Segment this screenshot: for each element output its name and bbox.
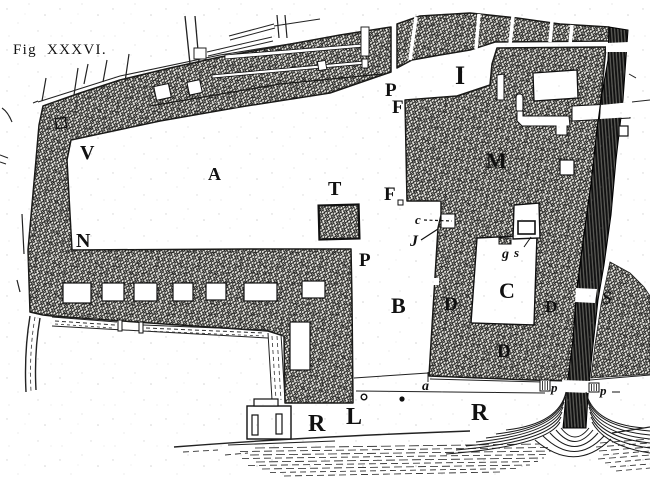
- svg-text:C: C: [499, 278, 515, 303]
- svg-text:S: S: [602, 288, 612, 309]
- svg-text:N: N: [76, 230, 91, 252]
- svg-text:a: a: [422, 379, 429, 394]
- svg-text:R: R: [308, 411, 326, 437]
- svg-text:V: V: [80, 142, 95, 164]
- svg-text:R: R: [471, 400, 489, 426]
- svg-text:D: D: [545, 297, 557, 316]
- svg-text:p: p: [599, 383, 607, 398]
- svg-text:J: J: [409, 233, 419, 250]
- svg-text:D: D: [497, 341, 511, 362]
- svg-text:P: P: [359, 250, 371, 271]
- svg-text:M: M: [486, 148, 507, 173]
- svg-text:T: T: [328, 178, 342, 200]
- svg-text:B: B: [391, 293, 406, 318]
- svg-text:D: D: [444, 294, 458, 315]
- svg-text:A: A: [208, 164, 221, 184]
- svg-text:g: g: [501, 247, 509, 262]
- svg-text:c: c: [415, 212, 421, 227]
- svg-text:s: s: [513, 245, 519, 260]
- svg-text:I: I: [455, 61, 465, 90]
- svg-text:L: L: [346, 404, 362, 430]
- svg-text:F: F: [392, 97, 404, 118]
- svg-text:F: F: [384, 184, 396, 205]
- svg-text:p: p: [550, 380, 558, 395]
